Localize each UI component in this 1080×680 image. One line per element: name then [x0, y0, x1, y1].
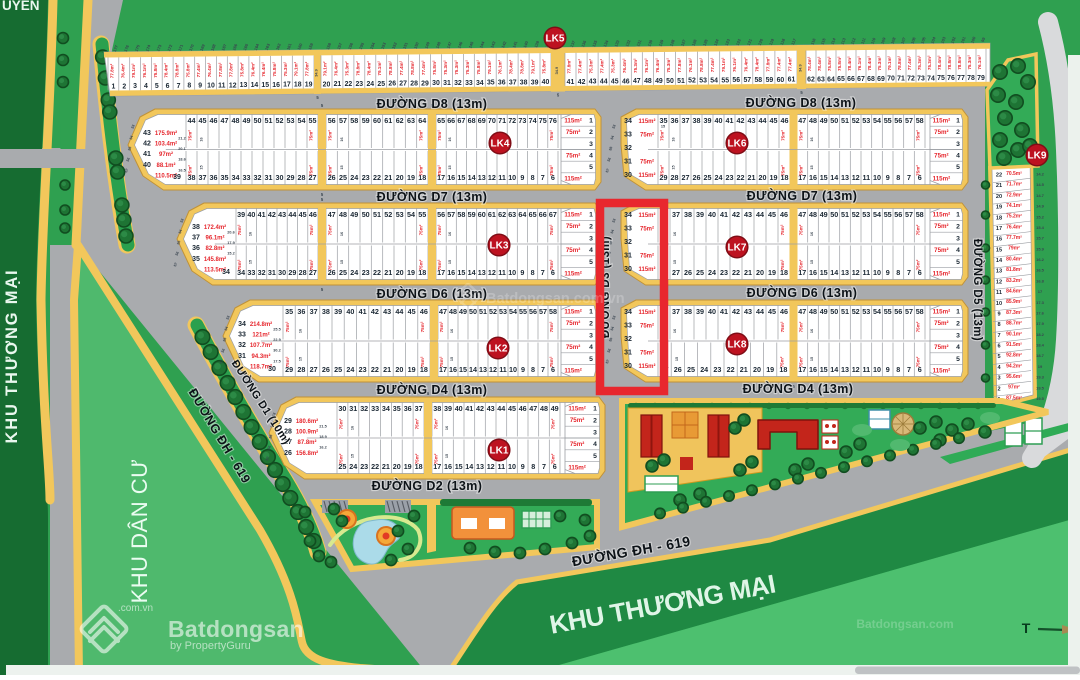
- svg-text:33: 33: [465, 80, 473, 87]
- svg-text:ĐƯỜNG D7 (13m): ĐƯỜNG D7 (13m): [377, 189, 488, 204]
- svg-text:51: 51: [841, 307, 849, 316]
- svg-text:36: 36: [671, 116, 679, 125]
- svg-text:37: 37: [509, 80, 517, 87]
- svg-text:4: 4: [589, 153, 593, 160]
- svg-text:34: 34: [222, 269, 230, 276]
- svg-text:23: 23: [713, 365, 721, 374]
- svg-text:78.4m²: 78.4m²: [509, 59, 514, 74]
- svg-text:7: 7: [541, 268, 545, 277]
- svg-text:4: 4: [589, 247, 593, 254]
- svg-text:14: 14: [465, 462, 473, 471]
- svg-text:77.4m²: 77.4m²: [196, 62, 201, 77]
- svg-text:36: 36: [404, 404, 412, 413]
- svg-text:18.7: 18.7: [1036, 353, 1045, 358]
- svg-text:75.3m²: 75.3m²: [666, 58, 671, 73]
- svg-text:77.8m²: 77.8m²: [765, 57, 770, 72]
- svg-text:25.5: 25.5: [273, 328, 280, 332]
- svg-text:11: 11: [498, 173, 506, 182]
- svg-text:14.9: 14.9: [1036, 204, 1045, 209]
- svg-text:34: 34: [232, 173, 240, 182]
- svg-text:50: 50: [830, 210, 838, 219]
- svg-text:75m²: 75m²: [660, 130, 665, 141]
- svg-text:75m²: 75m²: [934, 320, 948, 327]
- svg-text:66: 66: [847, 76, 855, 83]
- svg-text:31: 31: [443, 80, 451, 87]
- svg-text:32: 32: [238, 342, 246, 349]
- svg-text:16.2: 16.2: [319, 446, 326, 450]
- svg-text:75m²: 75m²: [780, 321, 785, 332]
- svg-text:48: 48: [644, 78, 652, 85]
- svg-text:54: 54: [710, 78, 718, 85]
- svg-text:33: 33: [624, 323, 632, 330]
- svg-text:75.3m²: 75.3m²: [611, 58, 616, 73]
- svg-text:75m²: 75m²: [439, 321, 444, 332]
- svg-text:78.4m²: 78.4m²: [754, 57, 759, 72]
- svg-text:28: 28: [298, 173, 306, 182]
- svg-text:49: 49: [655, 78, 663, 85]
- svg-text:75.8m²: 75.8m²: [827, 56, 832, 71]
- svg-text:78.4m²: 78.4m²: [817, 56, 822, 71]
- svg-text:1: 1: [589, 212, 593, 219]
- svg-text:15: 15: [261, 82, 269, 89]
- svg-text:115m²: 115m²: [564, 117, 582, 124]
- svg-text:31: 31: [624, 350, 632, 357]
- svg-text:77.8m²: 77.8m²: [218, 62, 223, 77]
- svg-text:53: 53: [396, 210, 404, 219]
- svg-text:25: 25: [696, 268, 704, 277]
- svg-text:52: 52: [852, 116, 860, 125]
- svg-text:8: 8: [896, 365, 900, 374]
- svg-text:75.8m²: 75.8m²: [153, 63, 158, 78]
- svg-text:32: 32: [360, 404, 368, 413]
- svg-text:214.8m²: 214.8m²: [250, 321, 272, 328]
- svg-text:115m²: 115m²: [933, 308, 951, 315]
- svg-text:18: 18: [996, 215, 1002, 221]
- svg-text:115m²: 115m²: [933, 176, 951, 183]
- svg-text:76.4m²: 76.4m²: [622, 58, 627, 73]
- svg-text:78.8m²: 78.8m²: [947, 55, 952, 70]
- svg-text:75m²: 75m²: [188, 130, 193, 141]
- svg-text:115m²: 115m²: [564, 308, 582, 315]
- svg-text:75m²: 75m²: [338, 418, 343, 429]
- svg-text:Batdongsan.com: Batdongsan.com: [856, 617, 953, 631]
- svg-text:44: 44: [756, 307, 764, 316]
- svg-text:49: 49: [820, 116, 828, 125]
- svg-text:17.5: 17.5: [273, 359, 280, 363]
- svg-text:39: 39: [531, 79, 539, 86]
- svg-text:13: 13: [478, 268, 486, 277]
- svg-text:2: 2: [589, 223, 593, 230]
- svg-text:67: 67: [549, 210, 557, 219]
- svg-text:78.8m²: 78.8m²: [410, 60, 415, 75]
- svg-text:30: 30: [338, 404, 346, 413]
- svg-text:68: 68: [867, 76, 875, 83]
- svg-text:44: 44: [759, 116, 767, 125]
- svg-text:172.4m²: 172.4m²: [204, 224, 226, 231]
- svg-text:75m²: 75m²: [415, 418, 420, 429]
- svg-text:24: 24: [700, 365, 708, 374]
- svg-text:16: 16: [450, 329, 454, 333]
- svg-text:38: 38: [322, 307, 330, 316]
- svg-text:2: 2: [956, 223, 960, 230]
- svg-text:76.1m²: 76.1m²: [977, 55, 982, 70]
- svg-text:15: 15: [448, 165, 452, 169]
- svg-text:103.4m²: 103.4m²: [155, 141, 177, 148]
- svg-text:15: 15: [675, 357, 679, 361]
- svg-text:LK2: LK2: [489, 344, 508, 355]
- svg-text:15: 15: [820, 268, 828, 277]
- svg-text:2: 2: [956, 129, 960, 136]
- svg-text:UYÊN: UYÊN: [2, 0, 40, 13]
- svg-text:75m²: 75m²: [570, 417, 584, 424]
- svg-text:7: 7: [541, 365, 545, 374]
- svg-text:75m²: 75m²: [433, 453, 438, 464]
- svg-text:75m²: 75m²: [780, 224, 785, 235]
- svg-text:115m²: 115m²: [568, 465, 586, 472]
- svg-text:79: 79: [977, 75, 985, 82]
- svg-text:Batdongsan.com.vn: Batdongsan.com.vn: [486, 291, 625, 307]
- svg-text:97m²: 97m²: [159, 151, 173, 158]
- svg-text:115m²: 115m²: [564, 271, 582, 278]
- svg-text:53: 53: [862, 116, 870, 125]
- svg-text:56: 56: [894, 210, 902, 219]
- svg-text:5: 5: [589, 164, 593, 171]
- svg-text:58: 58: [549, 307, 557, 316]
- svg-text:65: 65: [437, 116, 445, 125]
- svg-text:12: 12: [488, 173, 496, 182]
- svg-text:LK8: LK8: [728, 340, 747, 351]
- svg-text:34: 34: [624, 309, 632, 316]
- svg-text:46: 46: [309, 210, 317, 219]
- svg-text:75m²: 75m²: [309, 224, 314, 235]
- svg-text:75m²: 75m²: [338, 453, 343, 464]
- svg-text:17: 17: [1038, 289, 1043, 294]
- svg-text:3: 3: [133, 83, 137, 90]
- svg-text:62: 62: [498, 210, 506, 219]
- svg-text:15: 15: [820, 365, 828, 374]
- svg-text:42: 42: [371, 307, 379, 316]
- svg-text:9: 9: [198, 83, 202, 90]
- svg-text:76.4m²: 76.4m²: [743, 57, 748, 72]
- svg-text:55: 55: [721, 77, 729, 84]
- svg-text:66: 66: [447, 116, 455, 125]
- svg-text:10: 10: [873, 173, 881, 182]
- svg-text:15.2: 15.2: [227, 252, 234, 256]
- svg-text:88.7m²: 88.7m²: [1006, 321, 1022, 327]
- svg-text:18.6: 18.6: [178, 158, 185, 162]
- svg-text:19: 19: [766, 365, 774, 374]
- svg-text:35: 35: [221, 173, 229, 182]
- svg-text:76: 76: [947, 75, 955, 82]
- svg-text:15: 15: [445, 454, 449, 458]
- svg-text:16: 16: [340, 137, 344, 141]
- svg-text:75.8m²: 75.8m²: [272, 62, 277, 77]
- svg-text:59: 59: [362, 116, 370, 125]
- svg-text:100.9m²: 100.9m²: [296, 429, 318, 436]
- svg-text:27: 27: [682, 173, 690, 182]
- svg-text:75m²: 75m²: [237, 224, 242, 235]
- svg-text:10: 10: [508, 173, 516, 182]
- svg-text:12: 12: [487, 462, 495, 471]
- svg-text:56: 56: [529, 307, 537, 316]
- svg-text:24: 24: [349, 462, 357, 471]
- svg-text:1: 1: [956, 118, 960, 125]
- svg-text:15: 15: [340, 260, 344, 264]
- svg-text:75m²: 75m²: [781, 165, 786, 176]
- svg-text:74.1m²: 74.1m²: [1006, 203, 1022, 209]
- svg-text:54: 54: [509, 307, 517, 316]
- svg-text:11: 11: [498, 268, 506, 277]
- svg-text:76.4m²: 76.4m²: [207, 62, 212, 77]
- svg-text:14: 14: [251, 82, 259, 89]
- svg-text:38: 38: [433, 404, 441, 413]
- svg-text:48: 48: [809, 307, 817, 316]
- svg-text:35: 35: [393, 404, 401, 413]
- svg-text:45: 45: [770, 116, 778, 125]
- svg-text:75m²: 75m²: [934, 152, 948, 159]
- svg-text:50: 50: [830, 307, 838, 316]
- svg-text:79.1m²: 79.1m²: [377, 61, 382, 76]
- svg-text:76.4m²: 76.4m²: [120, 63, 125, 78]
- svg-text:75.3m²: 75.3m²: [454, 60, 459, 75]
- svg-text:55: 55: [418, 210, 426, 219]
- svg-text:16.5: 16.5: [1036, 268, 1045, 273]
- svg-text:69: 69: [478, 116, 486, 125]
- svg-text:75m²: 75m²: [549, 224, 554, 235]
- svg-text:10: 10: [207, 83, 215, 90]
- svg-text:115m²: 115m²: [564, 211, 582, 218]
- svg-text:70: 70: [488, 116, 496, 125]
- svg-text:22: 22: [373, 268, 381, 277]
- svg-text:39: 39: [173, 174, 181, 181]
- svg-text:75m²: 75m²: [237, 259, 242, 270]
- svg-text:58: 58: [350, 116, 358, 125]
- svg-text:46: 46: [519, 404, 527, 413]
- svg-text:61: 61: [488, 210, 496, 219]
- svg-text:37: 37: [682, 116, 690, 125]
- svg-text:43: 43: [143, 130, 151, 137]
- svg-text:16: 16: [298, 329, 302, 333]
- svg-text:45: 45: [299, 210, 307, 219]
- svg-text:44: 44: [395, 307, 403, 316]
- svg-text:78.8m²: 78.8m²: [175, 63, 180, 78]
- svg-text:16: 16: [809, 268, 817, 277]
- svg-text:28: 28: [297, 365, 305, 374]
- svg-text:115m²: 115m²: [564, 176, 582, 183]
- svg-text:13: 13: [841, 173, 849, 182]
- svg-text:56: 56: [437, 210, 445, 219]
- svg-text:3: 3: [956, 235, 960, 242]
- svg-text:12: 12: [489, 365, 497, 374]
- svg-text:32: 32: [258, 268, 266, 277]
- svg-text:5: 5: [956, 259, 960, 266]
- svg-text:1: 1: [589, 118, 593, 125]
- svg-text:27: 27: [399, 81, 407, 88]
- svg-text:36: 36: [498, 80, 506, 87]
- svg-text:34.9: 34.9: [798, 63, 803, 71]
- svg-text:1: 1: [589, 309, 593, 316]
- svg-text:60: 60: [478, 210, 486, 219]
- svg-text:8: 8: [531, 462, 535, 471]
- svg-text:78.8m²: 78.8m²: [897, 55, 902, 70]
- svg-text:71.7m²: 71.7m²: [1006, 182, 1022, 188]
- svg-text:16: 16: [350, 426, 354, 430]
- svg-text:70: 70: [887, 76, 895, 83]
- svg-text:30: 30: [624, 363, 632, 370]
- svg-text:75m²: 75m²: [934, 247, 948, 254]
- svg-text:36: 36: [192, 245, 200, 252]
- svg-text:7: 7: [907, 365, 911, 374]
- svg-text:64: 64: [418, 116, 426, 125]
- svg-text:4: 4: [589, 344, 593, 351]
- svg-text:75.3m²: 75.3m²: [633, 58, 638, 73]
- svg-text:19: 19: [407, 173, 415, 182]
- svg-text:31: 31: [624, 253, 632, 260]
- svg-text:38: 38: [684, 210, 692, 219]
- svg-text:33: 33: [247, 268, 255, 277]
- svg-text:22: 22: [373, 173, 381, 182]
- svg-text:14: 14: [996, 258, 1003, 264]
- svg-text:43: 43: [487, 404, 495, 413]
- svg-text:54: 54: [873, 210, 881, 219]
- svg-text:21: 21: [384, 268, 392, 277]
- svg-text:20: 20: [395, 365, 403, 374]
- svg-text:LK3: LK3: [490, 241, 509, 252]
- svg-text:66: 66: [539, 210, 547, 219]
- svg-text:34.9: 34.9: [314, 68, 319, 76]
- svg-text:75m²: 75m²: [549, 130, 554, 141]
- svg-text:42: 42: [732, 307, 740, 316]
- svg-text:50: 50: [362, 210, 370, 219]
- svg-text:70.5m²: 70.5m²: [1006, 171, 1022, 177]
- svg-text:90.1m²: 90.1m²: [1006, 331, 1022, 337]
- svg-text:15: 15: [448, 260, 452, 264]
- svg-text:55: 55: [309, 116, 317, 125]
- svg-text:40: 40: [708, 210, 716, 219]
- svg-text:30.2: 30.2: [273, 349, 280, 353]
- svg-text:47: 47: [633, 78, 641, 85]
- svg-text:48: 48: [339, 210, 347, 219]
- svg-text:15.2: 15.2: [1036, 214, 1045, 219]
- svg-text:42: 42: [737, 116, 745, 125]
- svg-text:9: 9: [520, 268, 524, 277]
- svg-text:75m²: 75m²: [328, 130, 333, 141]
- svg-text:76.4m²: 76.4m²: [250, 62, 255, 77]
- svg-text:46: 46: [780, 210, 788, 219]
- svg-text:.com.vn: .com.vn: [118, 603, 153, 614]
- svg-text:52: 52: [489, 307, 497, 316]
- svg-text:15: 15: [661, 125, 665, 129]
- svg-text:58: 58: [457, 210, 465, 219]
- svg-text:71: 71: [498, 116, 506, 125]
- svg-text:77.8m²: 77.8m²: [677, 58, 682, 73]
- svg-text:115m²: 115m²: [933, 117, 951, 124]
- svg-text:33: 33: [624, 132, 632, 139]
- svg-text:28: 28: [671, 173, 679, 182]
- svg-text:75m²: 75m²: [566, 247, 580, 254]
- svg-text:Batdongsan: Batdongsan: [168, 616, 304, 642]
- svg-text:75.8m²: 75.8m²: [542, 59, 547, 74]
- svg-text:75m²: 75m²: [640, 132, 654, 139]
- svg-text:47: 47: [529, 404, 537, 413]
- svg-text:50: 50: [666, 78, 674, 85]
- svg-text:14: 14: [830, 173, 838, 182]
- svg-text:8: 8: [531, 268, 535, 277]
- svg-text:14: 14: [830, 365, 838, 374]
- svg-text:19: 19: [996, 205, 1002, 211]
- svg-text:18.9: 18.9: [319, 435, 326, 439]
- svg-text:75m²: 75m²: [285, 321, 290, 332]
- svg-text:8: 8: [997, 322, 1000, 328]
- svg-text:58: 58: [916, 307, 924, 316]
- svg-text:75m²: 75m²: [551, 418, 556, 429]
- svg-text:115m²: 115m²: [933, 211, 951, 218]
- svg-text:115m²: 115m²: [638, 363, 655, 370]
- svg-text:115m²: 115m²: [568, 405, 586, 412]
- svg-text:76.1m²: 76.1m²: [498, 59, 503, 74]
- svg-text:11: 11: [499, 365, 507, 374]
- svg-text:50: 50: [469, 307, 477, 316]
- svg-text:75m²: 75m²: [328, 224, 333, 235]
- svg-text:51: 51: [841, 116, 849, 125]
- svg-text:24: 24: [350, 173, 358, 182]
- svg-text:15: 15: [457, 173, 465, 182]
- svg-text:38: 38: [684, 307, 692, 316]
- svg-text:52: 52: [852, 210, 860, 219]
- svg-text:78.4m²: 78.4m²: [937, 55, 942, 70]
- svg-text:79.1m²: 79.1m²: [531, 59, 536, 74]
- svg-text:79.1m²: 79.1m²: [487, 59, 492, 74]
- svg-text:87.3m²: 87.3m²: [1006, 310, 1022, 316]
- svg-text:49: 49: [459, 307, 467, 316]
- svg-text:79.1m²: 79.1m²: [323, 61, 328, 76]
- svg-text:75m²: 75m²: [437, 224, 442, 235]
- svg-text:15.4: 15.4: [1036, 225, 1045, 230]
- svg-text:43: 43: [589, 79, 597, 86]
- svg-text:75.8m²: 75.8m²: [476, 60, 481, 75]
- svg-text:20: 20: [753, 365, 761, 374]
- svg-text:75.2m²: 75.2m²: [1006, 214, 1022, 220]
- svg-text:21.2: 21.2: [178, 137, 185, 141]
- svg-text:75m²: 75m²: [188, 165, 193, 176]
- svg-text:75m²: 75m²: [798, 356, 803, 367]
- svg-text:61: 61: [384, 116, 392, 125]
- svg-text:62: 62: [396, 116, 404, 125]
- svg-text:38: 38: [192, 224, 200, 231]
- svg-text:14.7: 14.7: [1036, 193, 1045, 198]
- svg-text:62: 62: [807, 77, 815, 84]
- svg-text:1: 1: [956, 212, 960, 219]
- svg-text:34: 34: [476, 80, 484, 87]
- svg-text:75m²: 75m²: [420, 321, 425, 332]
- svg-text:80.4m²: 80.4m²: [1006, 256, 1022, 262]
- svg-text:10: 10: [873, 268, 881, 277]
- svg-text:2: 2: [589, 320, 593, 327]
- svg-text:75m²: 75m²: [916, 321, 921, 332]
- svg-text:75.8m²: 75.8m²: [432, 60, 437, 75]
- svg-text:77.8m²: 77.8m²: [229, 62, 234, 77]
- svg-text:27: 27: [672, 268, 680, 277]
- svg-text:29: 29: [288, 268, 296, 277]
- svg-text:ĐƯỜNG D4 (13m): ĐƯỜNG D4 (13m): [743, 381, 854, 396]
- svg-text:9: 9: [521, 365, 525, 374]
- svg-text:5: 5: [593, 453, 597, 460]
- svg-text:75.3m²: 75.3m²: [443, 60, 448, 75]
- svg-text:75m²: 75m²: [418, 130, 423, 141]
- svg-text:48: 48: [232, 116, 240, 125]
- svg-text:29: 29: [284, 418, 292, 425]
- svg-text:19: 19: [404, 462, 412, 471]
